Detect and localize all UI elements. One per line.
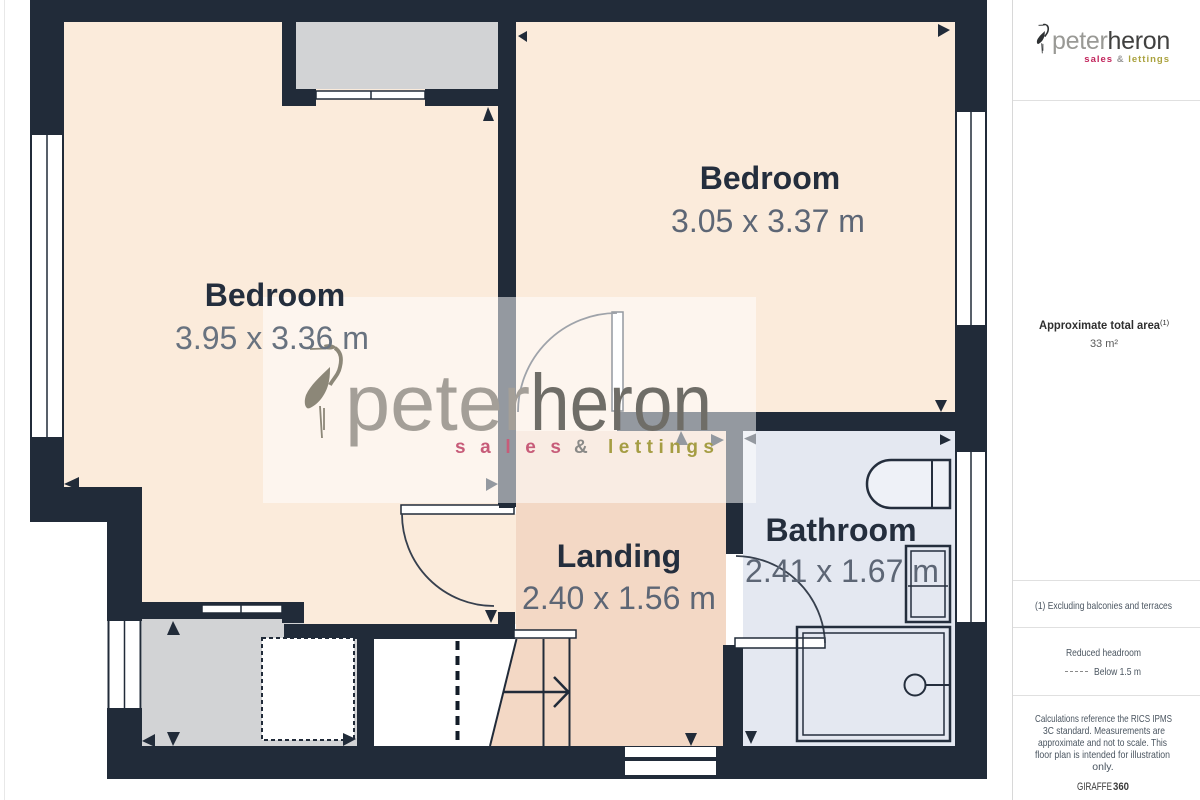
svg-text:2.41 x 1.67 m: 2.41 x 1.67 m (745, 553, 939, 589)
svg-text:Bathroom: Bathroom (765, 512, 916, 548)
svg-text:floor plan is intended for ill: floor plan is intended for illustration (1035, 749, 1170, 761)
svg-text:2.40 x 1.56 m: 2.40 x 1.56 m (522, 580, 716, 616)
svg-text:33 m²: 33 m² (1090, 338, 1118, 350)
svg-text:only.: only. (1092, 761, 1113, 773)
svg-text:Below 1.5 m: Below 1.5 m (1094, 666, 1141, 678)
svg-text:(1) Excluding balconies and te: (1) Excluding balconies and terraces (1035, 600, 1172, 612)
svg-text:GIRAFFE: GIRAFFE (1077, 781, 1112, 793)
svg-text:peterheron: peterheron (1052, 27, 1170, 55)
svg-text:sales & lettings: sales & lettings (1084, 54, 1170, 65)
svg-text:Calculations reference the RIC: Calculations reference the RICS IPMS (1035, 713, 1172, 725)
svg-text:3C standard. Measurements are: 3C standard. Measurements are (1043, 725, 1165, 737)
svg-text:Landing: Landing (557, 538, 681, 574)
svg-text:Approximate total area(1): Approximate total area(1) (1039, 318, 1170, 332)
svg-text:360: 360 (1113, 781, 1129, 793)
svg-text:Bedroom: Bedroom (700, 160, 840, 196)
svg-text:Bedroom: Bedroom (205, 277, 345, 313)
svg-text:3.05 x 3.37 m: 3.05 x 3.37 m (671, 203, 865, 239)
svg-text:3.95 x 3.36 m: 3.95 x 3.36 m (175, 320, 369, 356)
svg-text:Reduced headroom: Reduced headroom (1066, 647, 1141, 659)
svg-text:peterheron: peterheron (345, 358, 712, 447)
svg-text:approximate and not to scale.: approximate and not to scale. This (1038, 737, 1167, 749)
